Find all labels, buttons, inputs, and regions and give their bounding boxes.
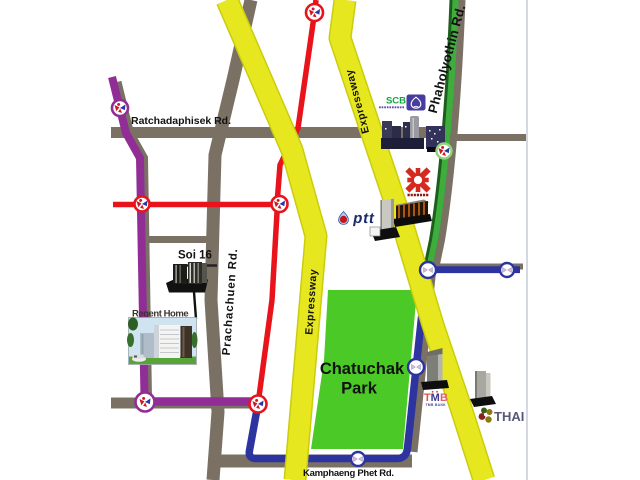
svg-text:Park: Park <box>341 380 378 398</box>
svg-text:Prachachuen Rd.: Prachachuen Rd. <box>221 248 240 356</box>
svg-text:THAI: THAI <box>494 409 524 424</box>
svg-text:Kamphaeng Phet Rd.: Kamphaeng Phet Rd. <box>303 468 394 479</box>
svg-text:Soi 16: Soi 16 <box>178 250 212 262</box>
svg-text:Chatuchak: Chatuchak <box>320 360 405 378</box>
svg-text:Ratchadaphisek Rd.: Ratchadaphisek Rd. <box>131 115 231 127</box>
svg-text:TMB BANK: TMB BANK <box>426 403 447 407</box>
svg-text:SCB: SCB <box>386 96 406 107</box>
svg-text:ptt: ptt <box>352 210 377 227</box>
